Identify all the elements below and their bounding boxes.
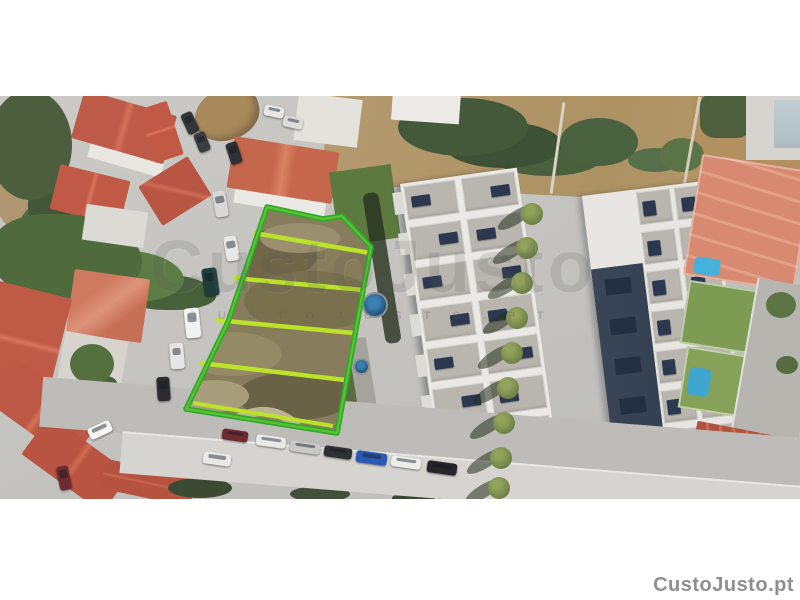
listing-image: CustoJusto CUSTOJUSTO.PT CustoJusto.pt [0,0,800,600]
aerial-photo: CustoJusto CUSTOJUSTO.PT [0,96,800,499]
center-watermark-tagline: CUSTOJUSTO.PT [188,310,566,322]
site-logo-watermark: CustoJusto.pt [653,574,794,597]
letterbox-top [0,0,800,96]
center-watermark-text: CustoJusto [150,224,597,309]
